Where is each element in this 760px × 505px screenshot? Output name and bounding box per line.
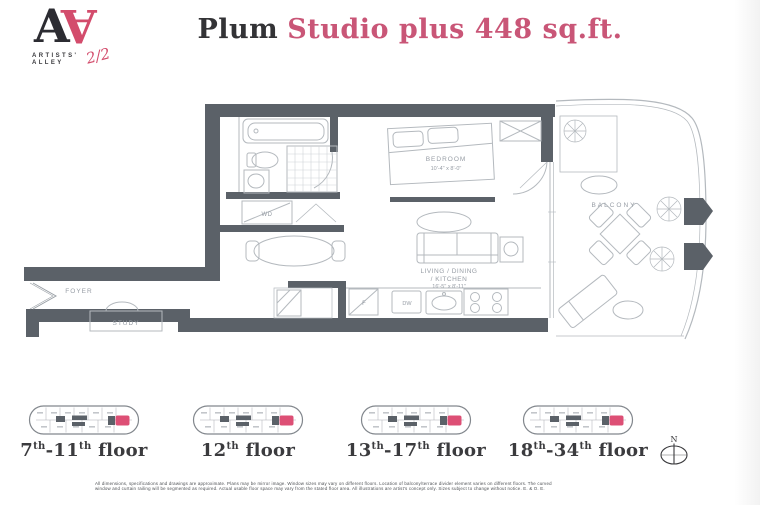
- keyplan-label: 12th floor: [168, 440, 328, 461]
- living-label-line2: / KITCHEN: [431, 276, 468, 283]
- keyplan-13-17: 13th-17th floor: [336, 404, 496, 461]
- keyplan-12: 12th floor: [168, 404, 328, 461]
- direction-arrow: [684, 243, 713, 270]
- plant: [564, 120, 586, 142]
- keyplan-label: 7th-11th floor: [4, 440, 164, 461]
- keyplan-label: 13th-17th floor: [336, 440, 496, 461]
- pillow: [428, 127, 459, 144]
- keyplan-18-34: 18th-34th floor: [498, 404, 658, 461]
- keyplan-label: 18th-34th floor: [498, 440, 658, 461]
- balcony-railing: [556, 99, 706, 339]
- bedroom-label: BEDROOM: [426, 156, 467, 163]
- dishwasher-label: DW: [402, 301, 412, 307]
- floorplan-page: A A ARTISTS' ALLEY 2/2 PlumStudio plus 4…: [0, 0, 760, 505]
- media-wall: [390, 197, 495, 202]
- pillow: [393, 131, 424, 148]
- disclaimer: All dimensions, specifications and drawi…: [95, 481, 670, 492]
- balcony-label: BALCONY: [591, 202, 636, 209]
- side-table: [500, 237, 523, 262]
- direction-arrows: [684, 198, 713, 270]
- plant: [657, 197, 681, 221]
- balcony-round-table: [613, 301, 643, 319]
- compass-north-label: N: [671, 435, 678, 444]
- wd-label: WD: [262, 212, 273, 218]
- page-edge-shading: [734, 0, 760, 505]
- keyplan-diagram: [28, 404, 140, 436]
- dining-chair: [246, 241, 259, 261]
- fridge-label: F: [362, 301, 366, 307]
- bed: [388, 123, 495, 184]
- plant: [650, 247, 674, 271]
- dining-table: [254, 236, 334, 266]
- study-label: STUDY: [112, 320, 139, 327]
- direction-arrow: [684, 198, 713, 225]
- kitchen-sink: [426, 291, 462, 314]
- living-label-line1: LIVING / DINING: [421, 268, 478, 275]
- chaise-lounge: [558, 274, 618, 329]
- disclaimer-line2: window and curtain railing will be segme…: [95, 486, 670, 491]
- keyplan-diagram: [360, 404, 472, 436]
- coffee-table: [417, 212, 471, 232]
- keyplan-7-11: 7th-11th floor: [4, 404, 164, 461]
- keyplan-diagram: [192, 404, 304, 436]
- keyplan-diagram: [522, 404, 634, 436]
- balcony-oval-table: [581, 176, 617, 194]
- foyer-label: FOYER: [65, 288, 92, 295]
- bedroom-dim: 10'-4" x 8'-0": [431, 166, 462, 172]
- north-compass-icon: N: [652, 433, 696, 474]
- stove: [464, 289, 508, 315]
- plan-linework: [30, 99, 706, 339]
- living-dim: 16'-5" x 8'-11": [432, 284, 465, 290]
- room-labels: FOYER STUDY WD BEDROOM 10'-4" x 8'-0" LI…: [65, 156, 636, 327]
